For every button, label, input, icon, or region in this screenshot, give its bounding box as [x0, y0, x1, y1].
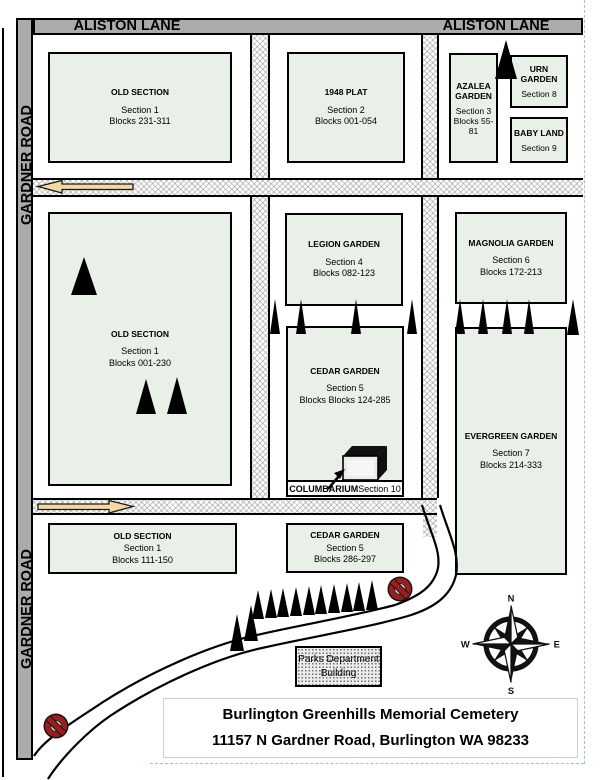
section-blocks: Blocks 082-123: [313, 268, 375, 280]
section-blocks: Blocks 172-213: [480, 267, 542, 279]
map-left-border: [2, 28, 4, 777]
section-1948-plat: 1948 PLAT Section 2 Blocks 001-054: [287, 52, 405, 163]
section-number: Section 5: [326, 543, 364, 555]
section-title: AZALEA GARDEN: [451, 81, 496, 101]
compass-north-label: N: [508, 593, 515, 603]
section-azalea-garden: AZALEA GARDEN Section 3 Blocks 55-81: [449, 53, 498, 163]
road-vertical-1-lower: [250, 197, 270, 498]
tree-icon: [328, 581, 340, 613]
columbarium-section: Section 10: [358, 484, 401, 494]
section-title: OLD SECTION: [111, 329, 169, 340]
section-blocks: Blocks 111-150: [112, 555, 173, 567]
section-number: Section 6: [492, 255, 530, 267]
section-baby-land: BABY LAND Section 9: [510, 117, 568, 163]
columbarium-strip: COLUMBARIUM Section 10: [286, 480, 404, 497]
tree-icon: [407, 296, 417, 334]
section-old-section-top: OLD SECTION Section 1 Blocks 231-311: [48, 52, 232, 163]
tree-icon: [366, 577, 378, 610]
section-title: URN GARDEN: [512, 64, 566, 84]
tree-icon: [265, 586, 277, 618]
section-number: Section 2: [327, 105, 365, 117]
section-urn-garden: URN GARDEN Section 8: [510, 55, 568, 108]
section-blocks: Blocks 286-297: [314, 554, 376, 566]
road-vertical-1-upper: [250, 35, 270, 178]
road-curve-stub: [423, 515, 437, 537]
tree-icon: [270, 296, 280, 334]
section-legion-garden: LEGION GARDEN Section 4 Blocks 082-123: [285, 213, 403, 306]
tree-icon: [277, 585, 289, 617]
no-entry-icon: [45, 715, 67, 737]
layout-guide-vertical: [584, 0, 585, 764]
aliston-lane-label-left: ALISTON LANE: [57, 20, 197, 33]
tree-icon: [230, 611, 244, 651]
section-blocks: Blocks 231-311: [109, 116, 170, 128]
section-magnolia-garden: MAGNOLIA GARDEN Section 6 Blocks 172-213: [455, 212, 567, 304]
compass-west-label: W: [461, 640, 470, 650]
parks-building-label-line2: Building: [321, 667, 357, 681]
aliston-lane-bar: ALISTON LANE ALISTON LANE: [33, 18, 583, 35]
section-number: Section 3: [456, 106, 491, 116]
section-cedar-garden-main: CEDAR GARDEN Section 5 Blocks Blocks 124…: [286, 326, 404, 482]
cemetery-name: Burlington Greenhills Memorial Cemetery: [223, 702, 519, 728]
section-number: Section 1: [121, 346, 159, 358]
section-number: Section 1: [121, 105, 159, 117]
section-title: OLD SECTION: [111, 87, 169, 98]
cemetery-map: GARDNER ROAD GARDNER ROAD ALISTON LANE A…: [0, 0, 601, 780]
tree-icon: [303, 583, 315, 615]
section-number: Section 5: [326, 383, 364, 395]
section-number: Section 4: [325, 257, 363, 269]
tree-icon: [290, 584, 302, 616]
section-title: LEGION GARDEN: [308, 239, 380, 250]
tree-icon: [341, 580, 353, 612]
columbarium-label: COLUMBARIUM: [289, 484, 358, 494]
compass-south-label: S: [508, 686, 514, 696]
compass-rose-icon: N E S W: [459, 592, 563, 696]
section-old-section-bottom: OLD SECTION Section 1 Blocks 111-150: [48, 523, 237, 574]
section-title: BABY LAND: [514, 128, 564, 138]
gardner-road-label-top: GARDNER ROAD: [19, 105, 35, 225]
road-vertical-2-upper: [421, 35, 439, 178]
section-title: CEDAR GARDEN: [310, 366, 379, 377]
parks-building-label-line1: Parks Department: [298, 653, 379, 667]
cemetery-address: 11157 N Gardner Road, Burlington WA 9823…: [212, 728, 529, 754]
section-number: Section 1: [124, 543, 162, 555]
section-number: Section 7: [492, 448, 530, 460]
section-number: Section 9: [521, 143, 556, 153]
tree-icon: [252, 587, 264, 619]
compass-east-label: E: [554, 640, 560, 650]
tree-icon: [315, 582, 327, 614]
aliston-lane-label-right: ALISTON LANE: [426, 20, 566, 33]
section-blocks: Blocks Blocks 124-285: [299, 395, 390, 407]
parks-department-building: Parks Department Building: [295, 646, 382, 687]
section-title: CEDAR GARDEN: [310, 530, 379, 541]
section-title: OLD SECTION: [113, 531, 171, 542]
map-title-block: Burlington Greenhills Memorial Cemetery …: [163, 698, 578, 758]
no-entry-icon: [389, 578, 411, 600]
section-blocks: Blocks 55-81: [451, 116, 496, 136]
section-title: MAGNOLIA GARDEN: [468, 238, 553, 249]
gardner-road-label-bottom: GARDNER ROAD: [19, 549, 35, 669]
gardner-road-bar: GARDNER ROAD GARDNER ROAD: [16, 18, 33, 760]
layout-guide-horizontal: [150, 763, 584, 764]
section-title: 1948 PLAT: [325, 87, 368, 98]
tree-icon: [244, 602, 258, 641]
road-vertical-2-lower: [421, 197, 439, 498]
tree-icon: [567, 296, 579, 335]
section-blocks: Blocks 214-333: [480, 460, 542, 472]
section-cedar-garden-bottom: CEDAR GARDEN Section 5 Blocks 286-297: [286, 523, 404, 573]
section-evergreen-garden: EVERGREEN GARDEN Section 7 Blocks 214-33…: [455, 327, 567, 575]
tree-icon: [353, 579, 365, 611]
section-blocks: Blocks 001-054: [315, 116, 377, 128]
section-old-section-main: OLD SECTION Section 1 Blocks 001-230: [48, 212, 232, 486]
road-horizontal-lower: [33, 498, 437, 515]
section-blocks: Blocks 001-230: [109, 358, 171, 370]
section-number: Section 8: [521, 89, 556, 99]
section-title: EVERGREEN GARDEN: [465, 431, 558, 442]
road-horizontal-upper: [33, 178, 583, 197]
